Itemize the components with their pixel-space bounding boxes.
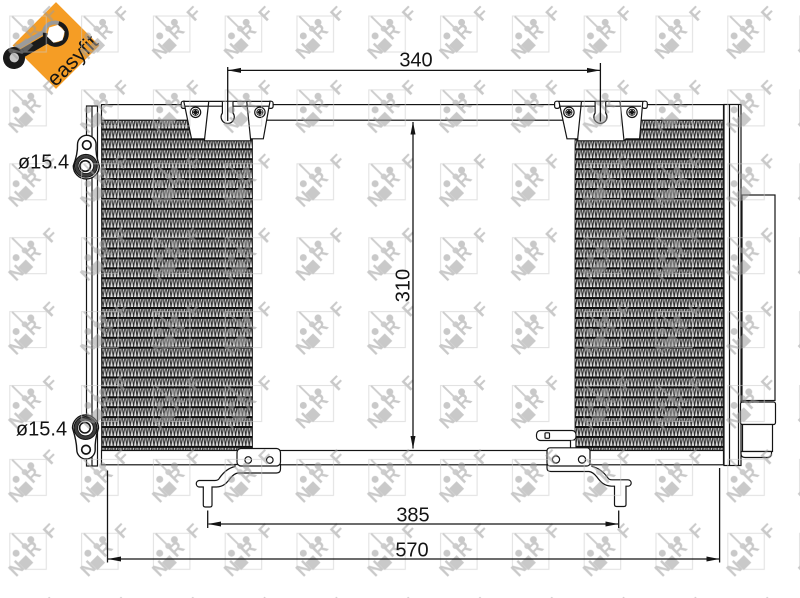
svg-text:310: 310	[393, 269, 415, 302]
svg-text:570: 570	[395, 540, 428, 562]
svg-text:ø15.4: ø15.4	[18, 152, 69, 174]
svg-text:ø15.4: ø15.4	[16, 419, 67, 441]
svg-text:385: 385	[396, 505, 429, 527]
svg-text:340: 340	[399, 50, 432, 72]
